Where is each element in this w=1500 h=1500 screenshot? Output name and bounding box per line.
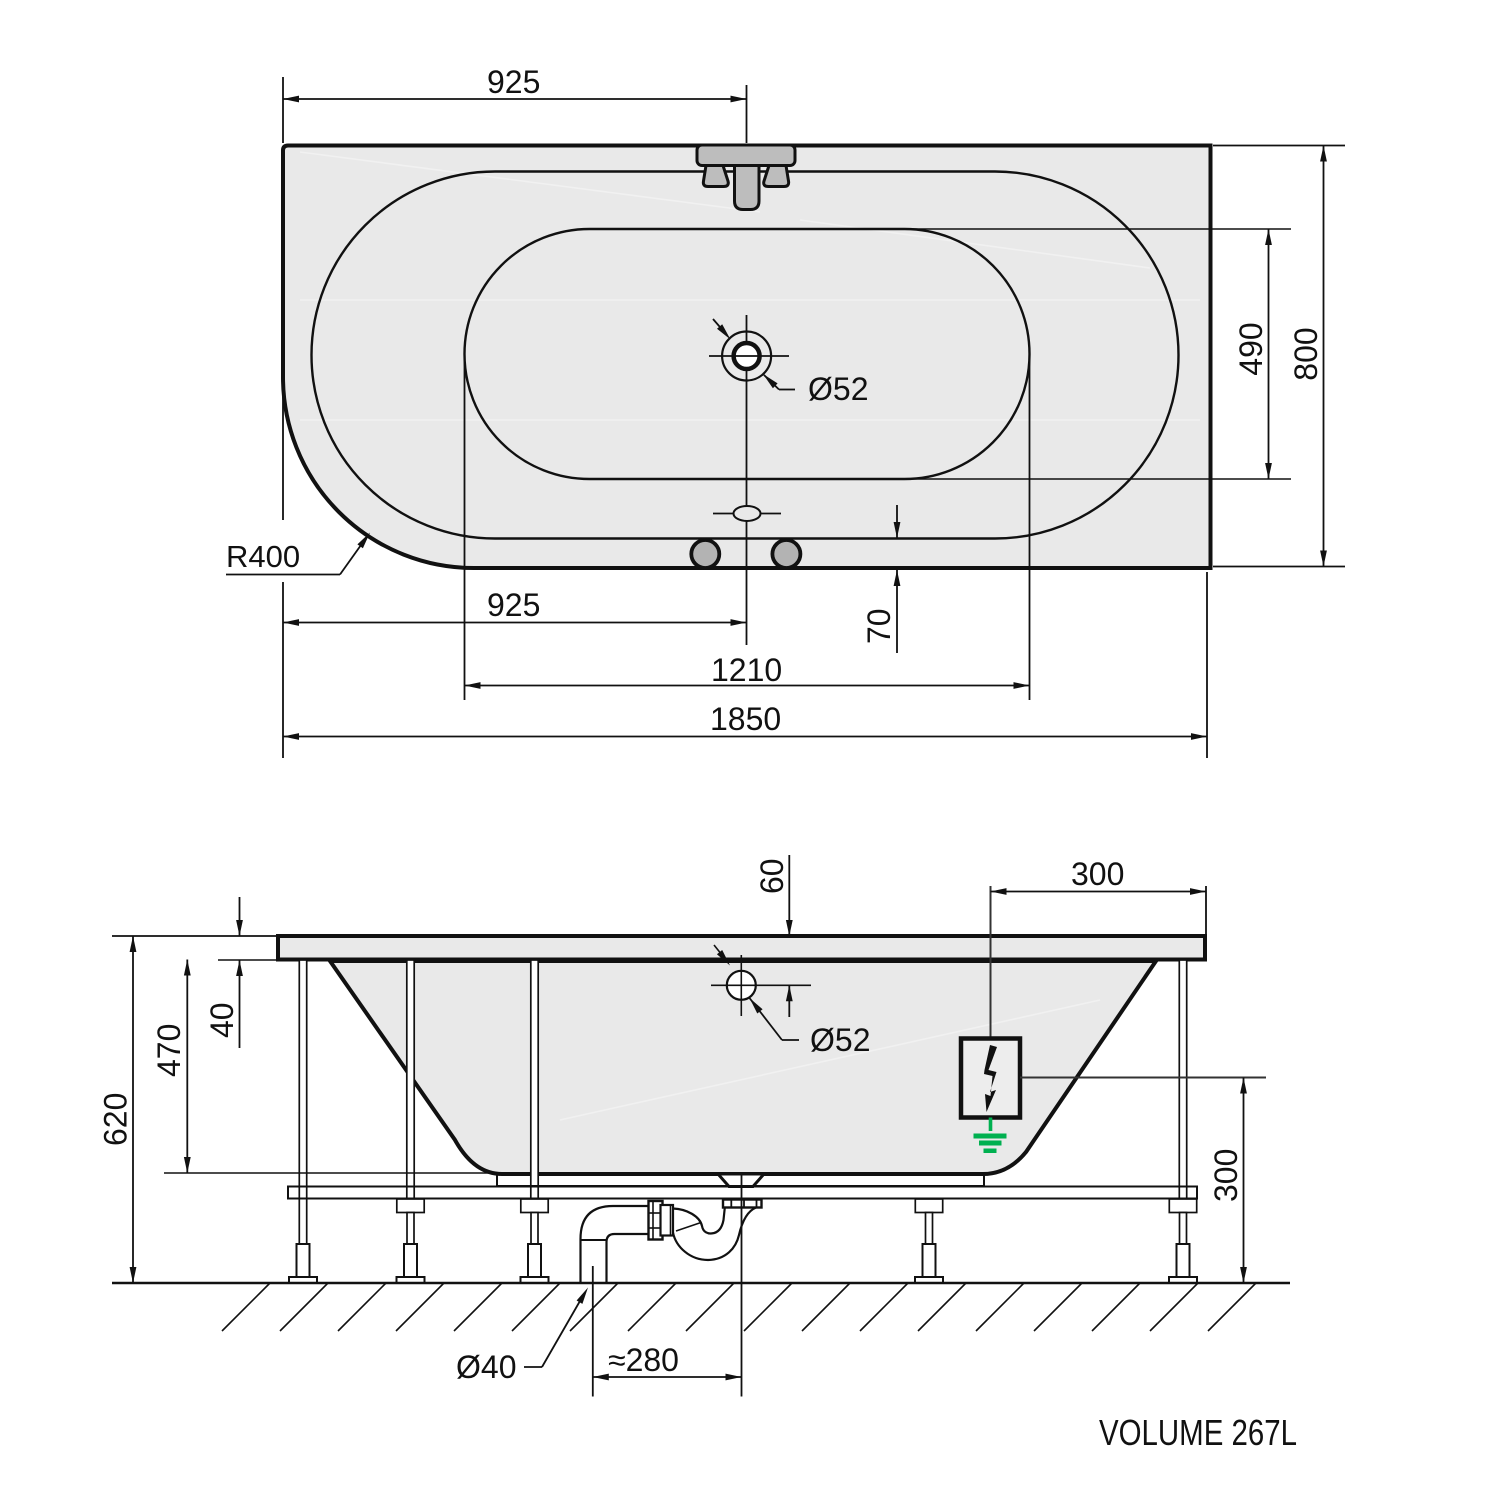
svg-text:VOLUME 267L: VOLUME 267L [1099,1412,1297,1453]
svg-text:620: 620 [98,1093,134,1146]
svg-text:≈280: ≈280 [608,1342,679,1378]
svg-text:1850: 1850 [710,701,781,737]
svg-text:490: 490 [1233,322,1269,375]
svg-text:R400: R400 [226,539,300,574]
svg-text:70: 70 [861,608,897,644]
svg-text:470: 470 [151,1024,187,1077]
svg-text:1210: 1210 [711,652,782,688]
svg-text:40: 40 [204,1002,240,1038]
svg-text:300: 300 [1208,1149,1244,1202]
svg-text:60: 60 [754,858,790,894]
svg-text:Ø52: Ø52 [810,1022,870,1058]
svg-text:Ø40: Ø40 [456,1349,516,1385]
svg-text:Ø52: Ø52 [808,371,868,407]
svg-text:300: 300 [1071,856,1124,892]
svg-text:800: 800 [1288,327,1324,380]
svg-text:925: 925 [487,64,540,100]
svg-text:925: 925 [487,587,540,623]
